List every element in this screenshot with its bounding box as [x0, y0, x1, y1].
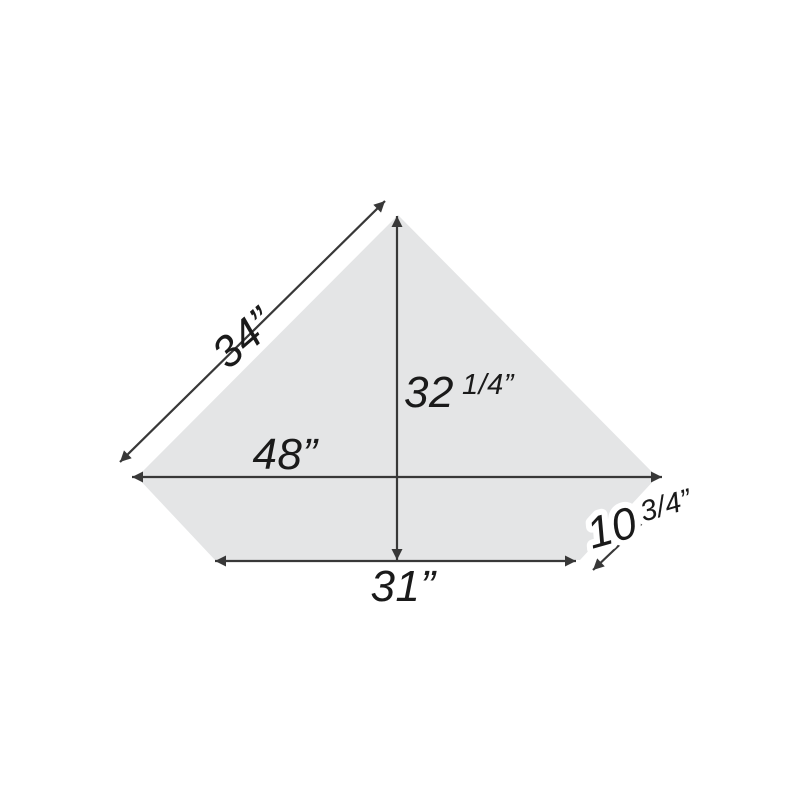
dimension-diagram: 34” 321/4” 48” 31” 103/4” — [0, 0, 800, 800]
dim-label-48: 48” — [252, 430, 319, 479]
dim-label-31: 31” — [370, 562, 437, 611]
diagram-canvas: 34” 321/4” 48” 31” 103/4” — [0, 0, 800, 800]
